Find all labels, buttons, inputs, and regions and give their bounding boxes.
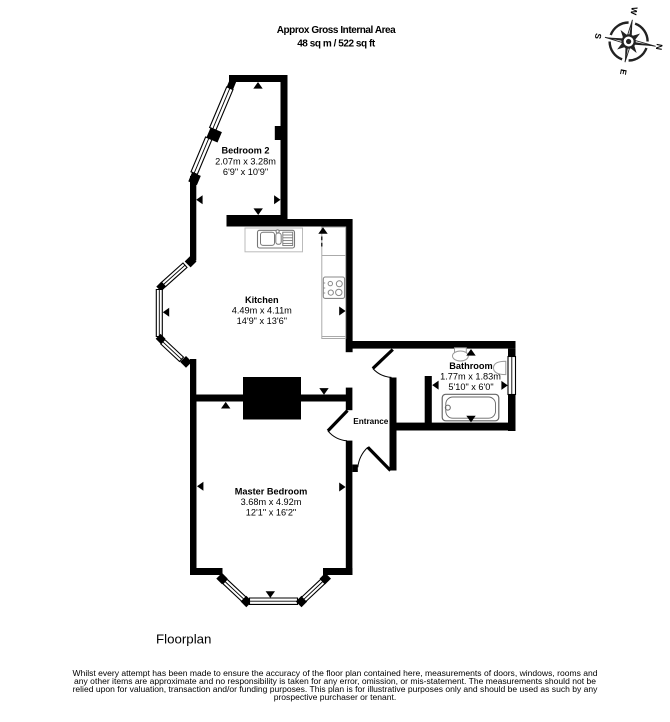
- svg-text:1.77m x 1.83m: 1.77m x 1.83m: [440, 372, 501, 382]
- svg-text:prospective purchaser or tenan: prospective purchaser or tenant.: [274, 692, 397, 702]
- svg-text:48 sq m / 522 sq ft: 48 sq m / 522 sq ft: [297, 39, 376, 50]
- svg-text:14'9" x 13'6": 14'9" x 13'6": [237, 316, 287, 326]
- svg-text:5'10" x 6'0": 5'10" x 6'0": [448, 382, 493, 392]
- svg-text:3.68m x 4.92m: 3.68m x 4.92m: [241, 497, 302, 507]
- svg-text:Kitchen: Kitchen: [245, 295, 279, 305]
- svg-text:4.49m x 4.11m: 4.49m x 4.11m: [232, 306, 292, 316]
- svg-text:Master Bedroom: Master Bedroom: [235, 486, 308, 496]
- svg-text:2.07m x 3.28m: 2.07m x 3.28m: [215, 156, 276, 166]
- svg-text:Floorplan: Floorplan: [156, 632, 211, 647]
- svg-text:6'9" x 10'9": 6'9" x 10'9": [223, 167, 268, 177]
- svg-text:Bedroom 2: Bedroom 2: [222, 146, 270, 156]
- svg-text:Bathroom: Bathroom: [449, 361, 492, 371]
- svg-text:12'1" x 16'2": 12'1" x 16'2": [246, 508, 296, 518]
- svg-text:Entrance: Entrance: [353, 417, 388, 426]
- svg-text:Approx Gross Internal Area: Approx Gross Internal Area: [277, 25, 396, 36]
